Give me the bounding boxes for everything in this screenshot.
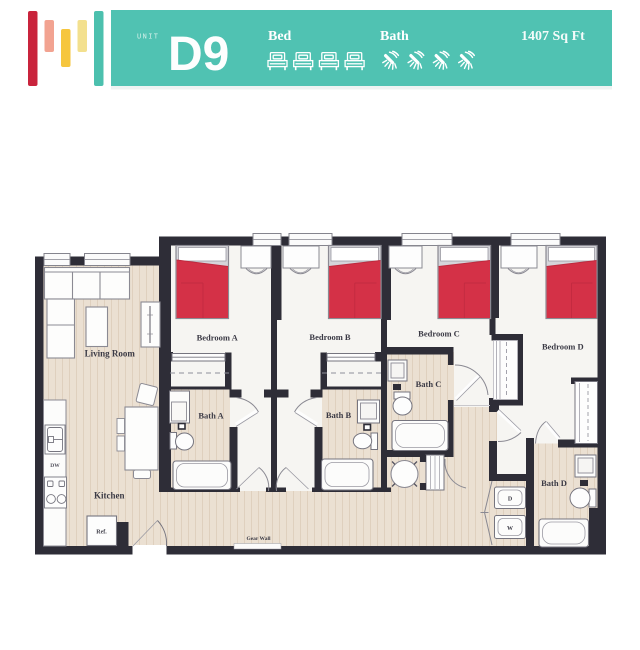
svg-text:W: W xyxy=(507,526,513,532)
svg-text:Bath C: Bath C xyxy=(416,379,442,389)
svg-text:Ref.: Ref. xyxy=(96,530,107,536)
svg-text:Bath: Bath xyxy=(380,29,409,44)
svg-text:Living Room: Living Room xyxy=(85,349,136,359)
svg-text:Bath D: Bath D xyxy=(541,478,567,488)
svg-text:Gear Wall: Gear Wall xyxy=(246,536,271,542)
svg-text:Bath B: Bath B xyxy=(326,410,352,420)
svg-text:D9: D9 xyxy=(168,28,229,81)
svg-text:Bed: Bed xyxy=(268,29,292,44)
svg-text:Bedroom A: Bedroom A xyxy=(197,333,239,343)
svg-text:Bedroom D: Bedroom D xyxy=(542,342,584,352)
svg-text:Kitchen: Kitchen xyxy=(94,491,125,501)
svg-text:DW: DW xyxy=(50,463,60,469)
svg-text:Bedroom C: Bedroom C xyxy=(418,329,460,339)
svg-text:D: D xyxy=(508,497,513,503)
svg-text:UNIT: UNIT xyxy=(137,34,159,42)
svg-text:1407 Sq Ft: 1407 Sq Ft xyxy=(521,29,585,44)
svg-text:Bath A: Bath A xyxy=(198,411,224,421)
svg-text:Bedroom B: Bedroom B xyxy=(309,332,350,342)
